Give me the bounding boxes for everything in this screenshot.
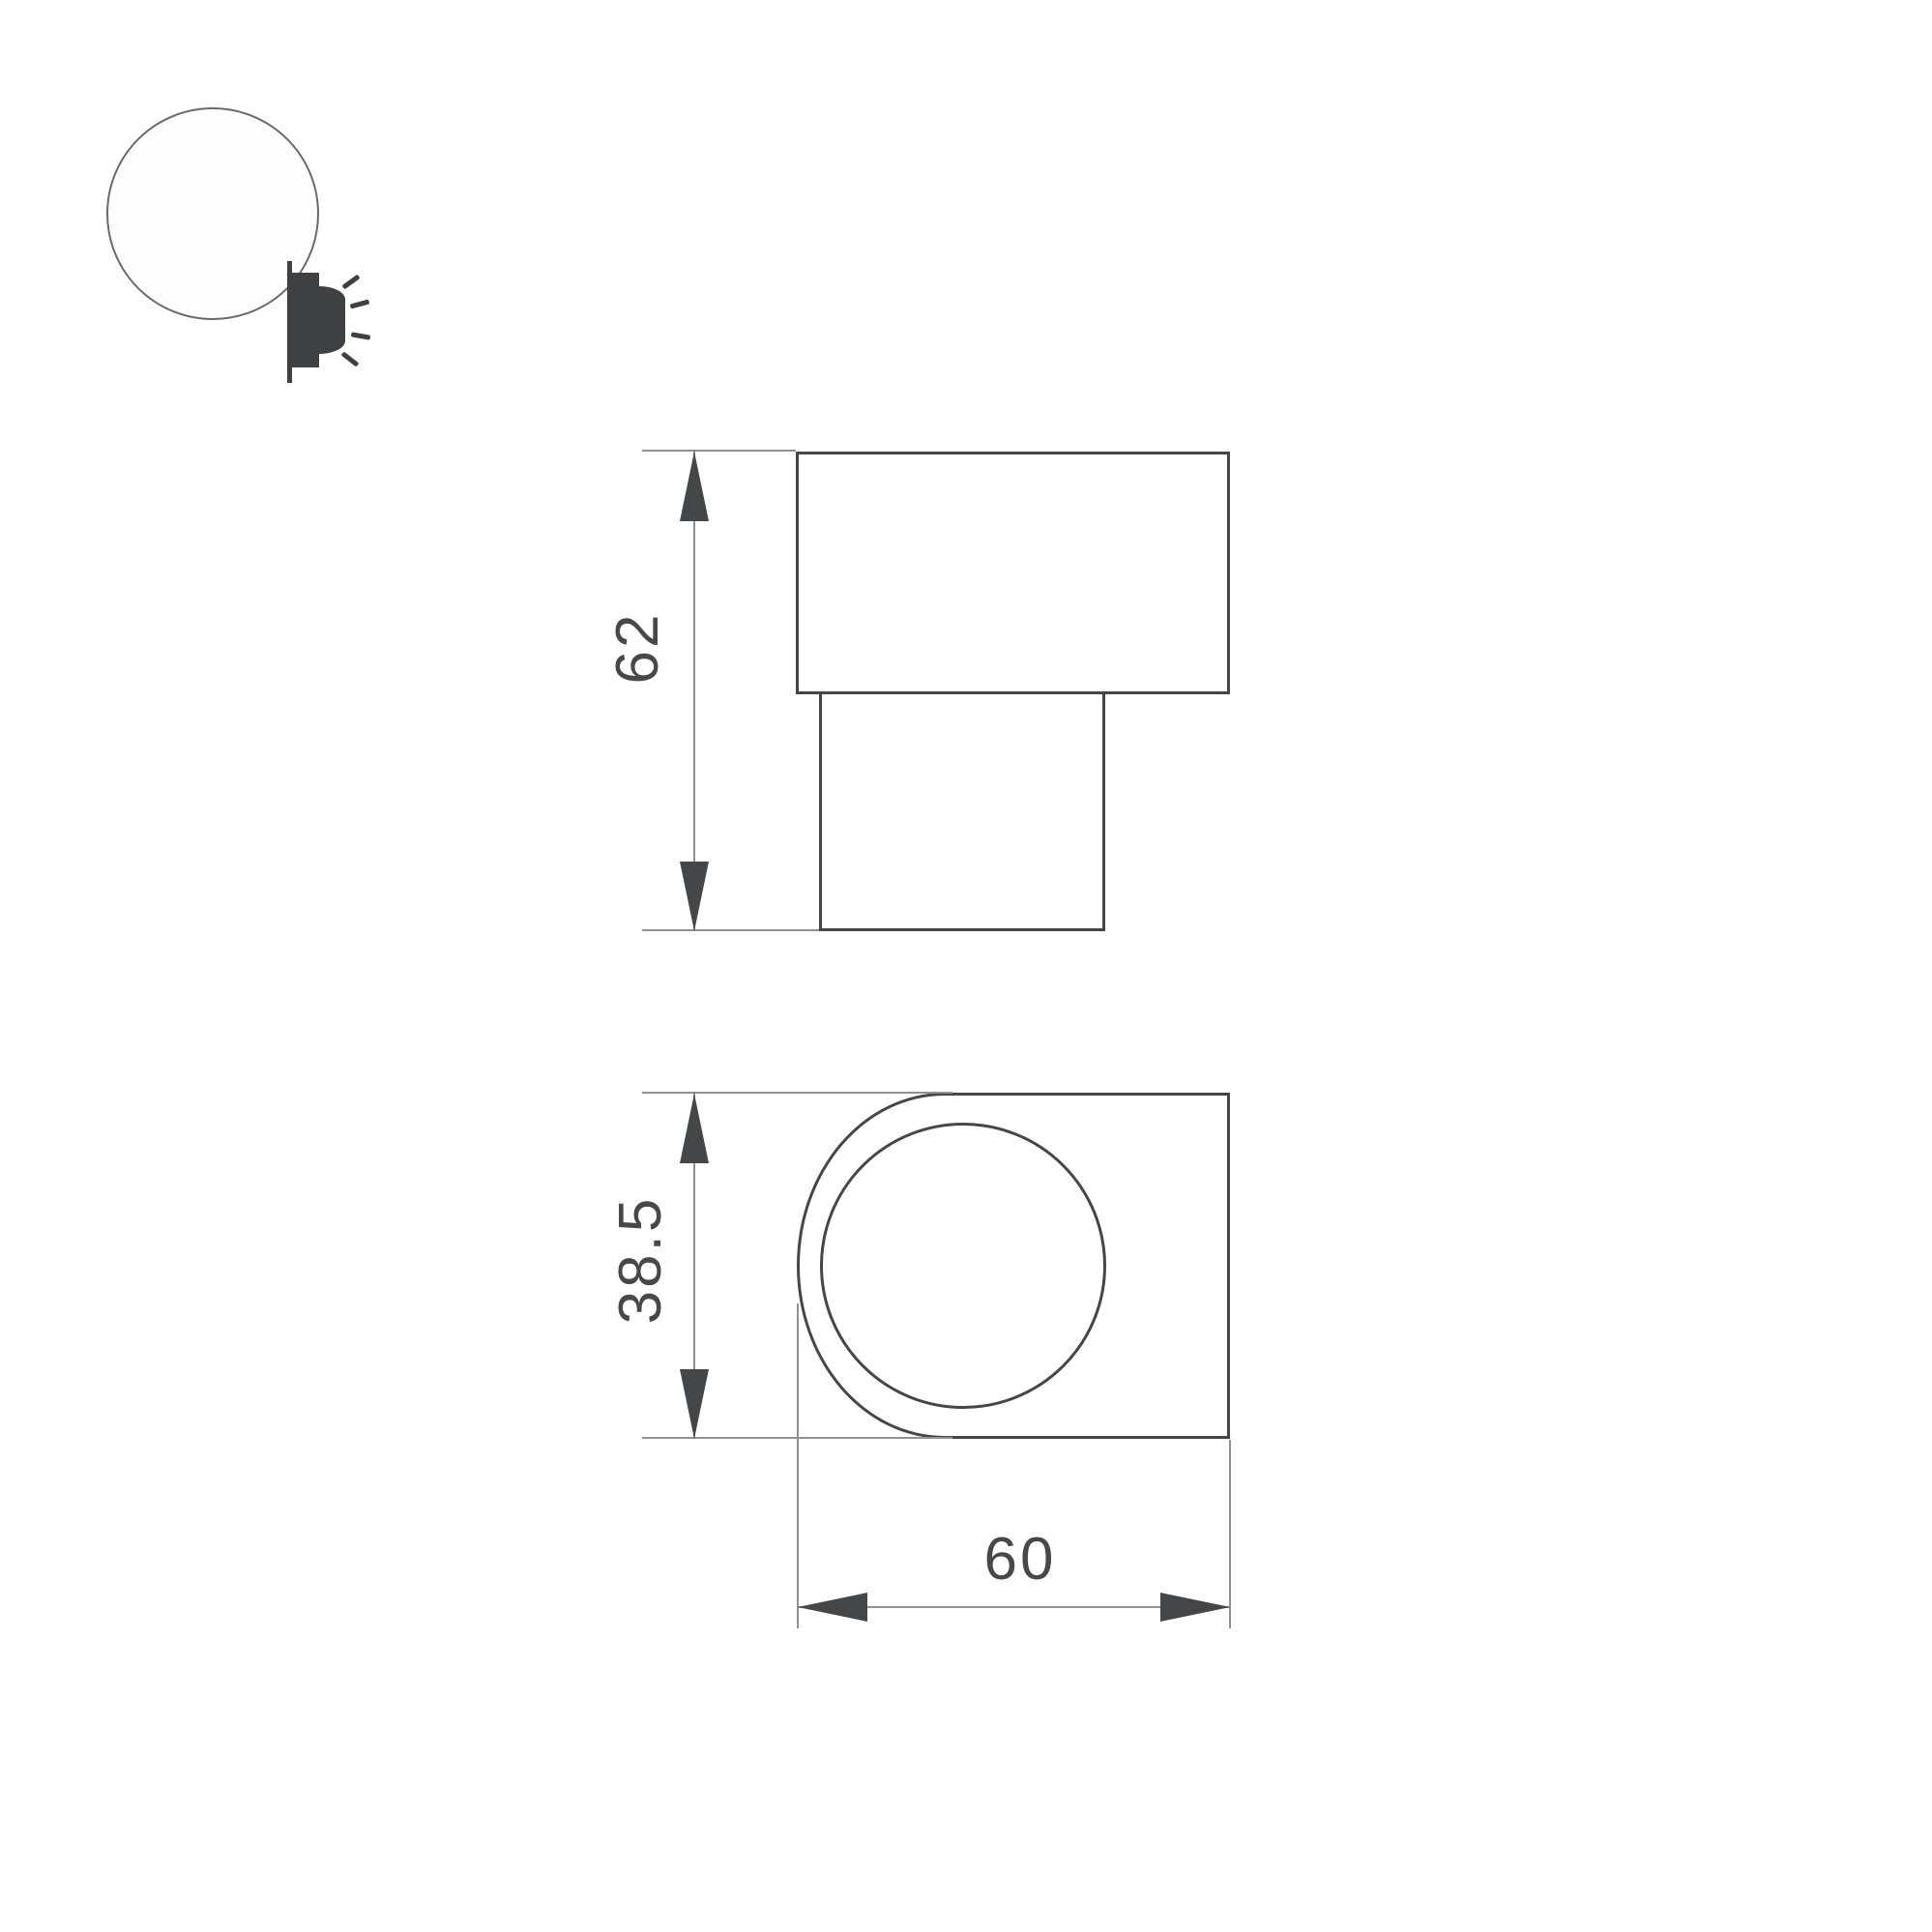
dim-38-5-arrow-up-icon [680,1094,709,1163]
light-ray-icon [341,351,360,366]
dim-62-extension-top [642,450,796,452]
dim-62-extension-bottom [642,929,819,931]
light-ray-icon [350,299,370,308]
dim-60-arrow-left-icon [798,1593,867,1622]
front-view-lens-circle [820,1123,1106,1409]
light-ray-icon [341,275,360,290]
lamp-dome-icon [319,286,345,354]
dim-38-5-arrow-down-icon [680,1369,709,1439]
side-view-head-outline [796,452,1230,694]
dim-38-5-label: 38.5 [606,1134,674,1386]
side-view-body-outline [819,694,1105,931]
lamp-body-icon [292,273,319,367]
dim-62-line [693,452,695,931]
dim-60-extension-left [797,1303,799,1628]
dim-62-arrow-up-icon [680,452,709,521]
technical-drawing-canvas: 62 38.5 60 [0,0,1932,1932]
light-ray-icon [351,332,371,339]
logo-badge-circle [106,107,319,320]
dim-62-arrow-down-icon [680,862,709,931]
dim-60-arrow-right-icon [1160,1593,1230,1622]
dim-62-label: 62 [603,551,671,745]
dim-60-label: 60 [923,1525,1117,1593]
